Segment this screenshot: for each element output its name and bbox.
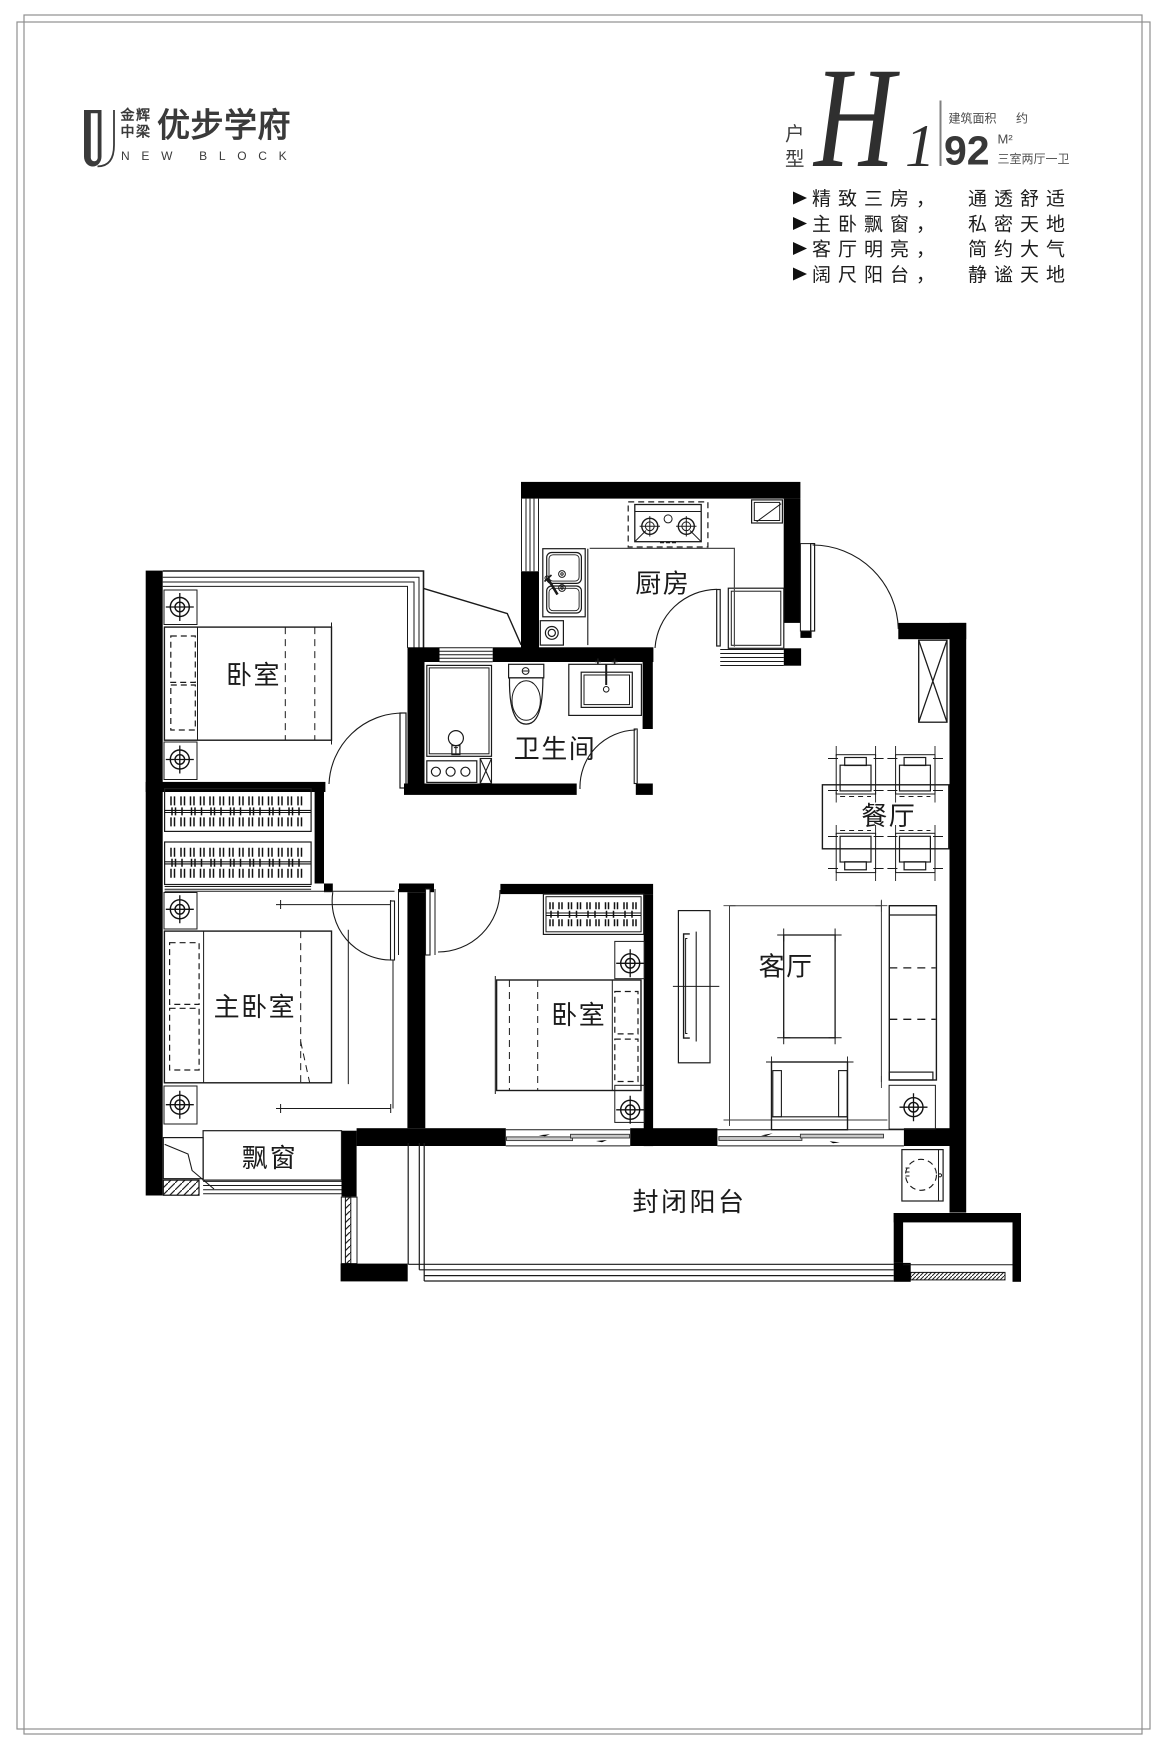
svg-text:金辉: 金辉 — [120, 107, 152, 123]
svg-text:卫生间: 卫生间 — [514, 734, 597, 764]
svg-text:优步学府: 优步学府 — [157, 107, 291, 144]
svg-text:中梁: 中梁 — [121, 124, 152, 140]
svg-text:主卧室: 主卧室 — [214, 992, 297, 1022]
svg-text:封闭阳台: 封闭阳台 — [633, 1187, 747, 1217]
svg-text:餐厅: 餐厅 — [861, 801, 916, 831]
svg-text:卧室: 卧室 — [551, 1000, 606, 1030]
svg-text:M²: M² — [998, 132, 1014, 147]
svg-text:阔尺阳台， 静谧天地: 阔尺阳台， 静谧天地 — [812, 264, 1072, 286]
svg-text:飘窗: 飘窗 — [242, 1143, 298, 1173]
svg-text:NEW BLOCK: NEW BLOCK — [121, 149, 298, 163]
svg-text:建筑面积: 建筑面积 — [949, 111, 997, 126]
svg-text:主卧飘窗， 私密天地: 主卧飘窗， 私密天地 — [812, 214, 1072, 236]
svg-text:92: 92 — [944, 128, 990, 174]
svg-text:1: 1 — [905, 113, 935, 179]
svg-text:客厅: 客厅 — [759, 951, 814, 981]
svg-text:客厅明亮， 简约大气: 客厅明亮， 简约大气 — [812, 239, 1072, 261]
svg-text:卧室: 卧室 — [226, 660, 281, 690]
svg-text:约: 约 — [1016, 111, 1028, 126]
svg-text:H: H — [812, 38, 900, 198]
svg-text:精致三房， 通透舒适: 精致三房， 通透舒适 — [812, 188, 1072, 210]
svg-text:三室两厅一卫: 三室两厅一卫 — [998, 151, 1070, 166]
svg-text:户: 户 — [785, 124, 805, 146]
svg-text:厨房: 厨房 — [635, 568, 690, 598]
svg-text:型: 型 — [785, 149, 805, 171]
